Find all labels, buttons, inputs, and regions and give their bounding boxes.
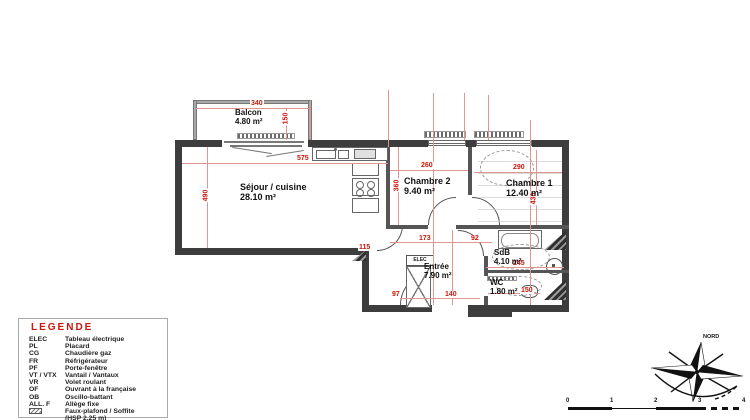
scale-tick: 3 <box>698 398 701 404</box>
legend-row: PFPorte-fenêtre <box>19 365 167 372</box>
legend-row: FRRéfrigérateur <box>19 358 167 365</box>
north-label: NORD <box>703 334 719 340</box>
legend-title: LEGENDE <box>31 322 167 333</box>
room-label-chambre1: Chambre 112.40 m² <box>506 178 553 198</box>
window-label-chambre2 <box>424 131 466 138</box>
dim-entree-width: 140 <box>444 291 458 298</box>
gas-boiler <box>354 149 376 159</box>
room-label-wc: WC1.80 m² <box>490 278 518 296</box>
scale-bar: 0 1 2 3 4 <box>560 398 750 416</box>
scale-tick: 4 <box>742 398 745 404</box>
dim-passage: 115 <box>358 244 371 251</box>
window-chambre1 <box>476 140 532 146</box>
legend-row: CGChaudière gaz <box>19 350 167 357</box>
dim-chambre1-width: 290 <box>512 164 526 171</box>
dim-hall-a: 173 <box>418 235 432 242</box>
legend-row: VRVolet roulant <box>19 379 167 386</box>
legend-row: VT / VTXVantail / Vantaux <box>19 372 167 379</box>
legend-row-hatch: Faux-plafond / Soffite(HSP 2,25 m) <box>19 408 167 420</box>
fridge <box>352 198 379 213</box>
legend-row: ELECTableau électrique <box>19 336 167 343</box>
room-label-entree: Entrée7.90 m² <box>424 262 452 280</box>
legend-row: PLPlacard <box>19 343 167 350</box>
window-label-chambre1 <box>474 131 524 138</box>
dim-placard: 97 <box>391 291 401 298</box>
dim-chambre2-width: 260 <box>420 162 434 169</box>
scale-tick: 0 <box>566 398 569 404</box>
dim-balcon-width: 340 <box>250 100 264 107</box>
scale-tick: 2 <box>654 398 657 404</box>
room-label-sejour: Séjour / cuisine28.10 m² <box>240 182 307 202</box>
legend-row: ALL. FAllège fixe <box>19 401 167 408</box>
scale-tick: 1 <box>610 398 613 404</box>
hatch-swatch <box>29 408 42 414</box>
room-label-balcon: Balcon4.80 m² <box>235 108 263 126</box>
dim-wc-width: 150 <box>520 287 534 294</box>
compass-rose: NORD <box>645 328 749 404</box>
dim-sejour-height: 490 <box>202 189 209 203</box>
legend-row: OBOscillo-battant <box>19 394 167 401</box>
room-label-chambre2: Chambre 29.40 m² <box>404 176 451 196</box>
room-label-sdb: SdB4.10 m² <box>494 248 522 266</box>
kitchen-sink <box>316 150 336 159</box>
dim-hall-b: 92 <box>470 235 480 242</box>
legend: LEGENDE ELECTableau électrique PLPlacard… <box>18 318 168 418</box>
dim-balcon-depth: 150 <box>282 112 289 126</box>
legend-row: OFOuvrant à la française <box>19 386 167 393</box>
floor-plan-page: { "plan": { "rooms": [ {"id":"balcon","n… <box>0 0 750 420</box>
dim-chambre2-height: 360 <box>393 179 400 193</box>
dim-sejour-width: 575 <box>296 155 310 162</box>
